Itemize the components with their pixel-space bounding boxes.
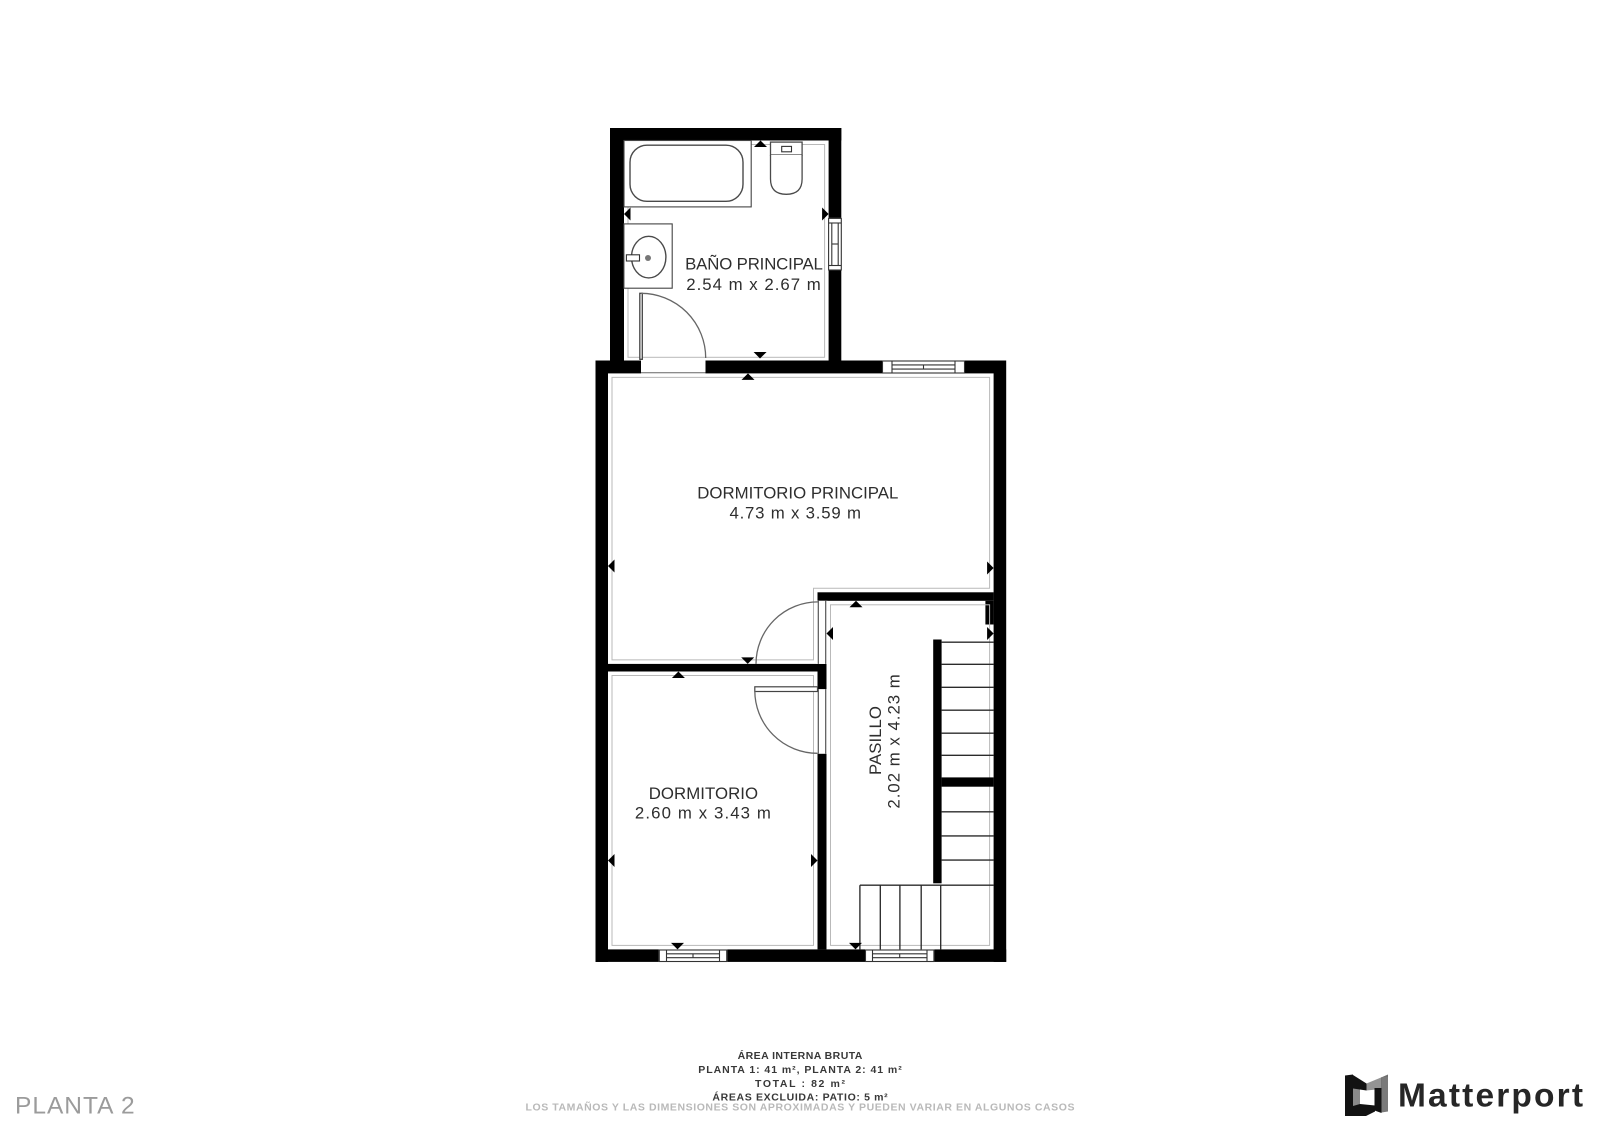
svg-text:2.02 m x 4.23 m: 2.02 m x 4.23 m [885,674,904,808]
svg-text:PASILLO: PASILLO [866,706,885,775]
svg-text:BAÑO PRINCIPAL: BAÑO PRINCIPAL [685,254,823,274]
svg-text:LOS TAMAÑOS Y LAS DIMENSIONES: LOS TAMAÑOS Y LAS DIMENSIONES SON APROXI… [526,1101,1075,1114]
svg-text:2.60 m x 3.43 m: 2.60 m x 3.43 m [635,804,771,823]
svg-text:ÁREA INTERNA BRUTA: ÁREA INTERNA BRUTA [738,1049,863,1062]
svg-text:DORMITORIO PRINCIPAL: DORMITORIO PRINCIPAL [697,483,898,502]
svg-text:4.73 m x 3.59 m: 4.73 m x 3.59 m [729,504,861,523]
svg-text:PLANTA 1: 41 m², PLANTA 2: 41: PLANTA 1: 41 m², PLANTA 2: 41 m² [698,1064,902,1076]
svg-text:PLANTA 2: PLANTA 2 [15,1093,136,1120]
svg-text:DORMITORIO: DORMITORIO [649,784,758,803]
svg-text:2.54 m x 2.67 m: 2.54 m x 2.67 m [686,275,820,294]
